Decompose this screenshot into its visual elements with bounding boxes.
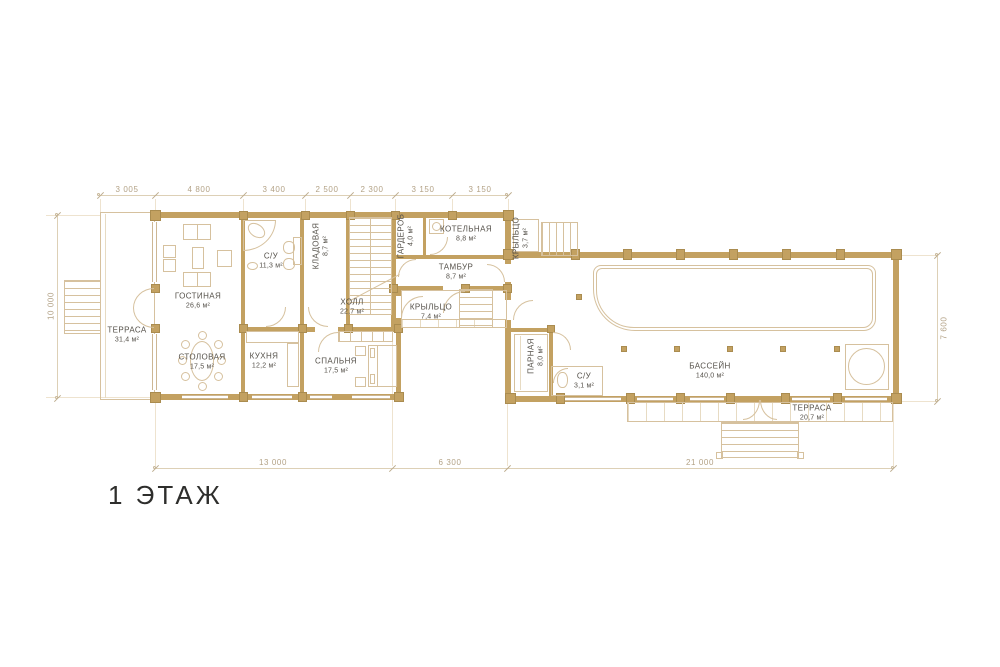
window [792,397,830,401]
dimension-line-right [937,255,938,402]
dim-label: 13 000 [259,458,287,467]
window [152,222,157,282]
armchair [163,259,176,272]
dim-endpoint [935,253,938,256]
nightstand [355,377,366,387]
window [845,397,887,401]
kitchen-counter [287,343,299,387]
window [152,334,157,390]
dim-label: 21 000 [686,458,714,467]
column [834,346,840,352]
dimension-line-bottom [155,468,893,469]
door-arc [318,332,338,352]
dim-label: 3 150 [411,185,434,194]
stair-rail [370,217,371,315]
chair [198,382,207,391]
window [565,397,621,401]
room-label-living: ГОСТИНАЯ 26,6 м² [175,291,221,310]
dim-endpoint [97,193,100,196]
wall-post [891,249,902,260]
chair [181,340,190,349]
room-label-kitchen: КУХНЯ 12,2 м² [250,351,279,370]
window [182,395,228,399]
wall [505,320,511,402]
floor-plan: 3 005 4 800 3 400 2 500 2 300 3 150 3 15… [0,0,1000,667]
exterior-stairs [64,280,101,334]
terrace-steps [721,422,799,458]
dim-endpoint [505,193,508,196]
closet [338,331,393,342]
room-label-terrace-pool: ТЕРРАСА 20,7 м² [792,403,831,422]
window [352,395,390,399]
dim-endpoint [55,396,58,399]
room-label-porch-small: КРЫЛЬЦО 3,7 м² [511,217,530,259]
sofa [197,224,198,240]
stair-post [716,452,723,459]
dim-label: 2 500 [315,185,338,194]
dim-label: 10 000 [47,292,56,320]
wall-post [239,392,248,402]
dim-label: 7 600 [940,316,949,339]
column [780,346,786,352]
witness-line [507,404,508,466]
dimension-line-left [57,215,58,398]
sink [247,262,258,270]
column [621,346,627,352]
room-label-tambour: ТАМБУР 8,7 м² [439,262,474,281]
nightstand [355,346,366,356]
wall-post [239,211,248,220]
column [576,294,582,300]
door-arc [513,300,533,320]
window [310,395,332,399]
pool-inner-line [596,268,873,328]
wall-post [448,211,457,220]
room-label-dining: СТОЛОВАЯ 17,5 м² [178,352,225,371]
armchair [163,245,176,258]
room-label-storage: КЛАДОВАЯ 8,7 м² [311,223,330,270]
room-label-hall: ХОЛЛ 22,7 м² [340,297,364,316]
dim-label: 3 400 [262,185,285,194]
armchair [217,250,232,267]
wall-post [505,393,516,404]
wall-post [782,249,791,260]
witness-line [46,215,100,216]
dim-endpoint [55,213,58,216]
witness-line [100,199,101,212]
room-label-porch-mid: КРЫЛЬЦО 7,4 м² [410,302,452,321]
dim-endpoint [935,399,938,402]
cabinet [293,237,302,265]
room-label-bedroom: СПАЛЬНЯ 17,5 м² [315,356,357,375]
wall-post [150,392,161,403]
page-title: 1 ЭТАЖ [108,480,223,511]
room-label-boiler: КОТЕЛЬНАЯ 8,8 м² [440,224,492,243]
steam-room-bench [520,336,521,390]
dim-endpoint [891,466,894,469]
chair [181,372,190,381]
window [637,397,673,401]
wall-post [301,211,310,220]
sofa [197,272,198,287]
room-label-steam: ПАРНАЯ 8,0 м² [526,338,545,374]
wall-post [298,392,307,402]
deck-edge-line [105,214,106,398]
door-arc [308,307,328,327]
dim-endpoint [153,466,156,469]
wall-post [623,249,632,260]
dim-label: 2 300 [360,185,383,194]
wall [893,252,899,402]
room-label-wardrobe: ГАРДЕРОБ 4,0 м² [396,214,415,259]
chair [214,340,223,349]
door-arc [398,259,416,277]
winder-stairs [541,222,578,256]
bed [377,345,378,387]
chair [214,372,223,381]
pillow [370,374,375,384]
dim-label: 3 005 [115,185,138,194]
hot-tub [848,348,885,385]
wall-post [836,249,845,260]
wall-post [150,210,161,221]
coffee-table [192,247,204,269]
window [690,397,724,401]
witness-line [155,402,156,466]
room-label-bath2: С/У 3,1 м² [574,371,594,390]
wall-post [394,392,404,402]
door-arc [553,332,571,350]
dim-label: 6 300 [438,458,461,467]
chair [198,331,207,340]
wall [241,327,245,400]
witness-line [893,404,894,466]
wall [423,217,426,258]
kitchen-counter [246,331,299,343]
dim-label: 4 800 [187,185,210,194]
wall [511,328,551,332]
witness-line [899,255,937,256]
witness-line [899,401,937,402]
window [252,395,292,399]
stair-post [797,452,804,459]
wall [300,327,304,400]
column [727,346,733,352]
column [674,346,680,352]
wall [300,217,304,329]
dim-label: 3 150 [468,185,491,194]
room-label-pool: БАССЕЙН 140,0 м² [689,361,730,380]
pillow [370,348,375,358]
door-arc [487,264,505,282]
room-label-bath1: С/У 11,3 м² [259,251,283,270]
room-label-terrace-left: ТЕРРАСА 31,4 м² [107,325,146,344]
wall-post [298,324,307,333]
wall-post [676,249,685,260]
wall-post [729,249,738,260]
door-arc [266,307,286,327]
